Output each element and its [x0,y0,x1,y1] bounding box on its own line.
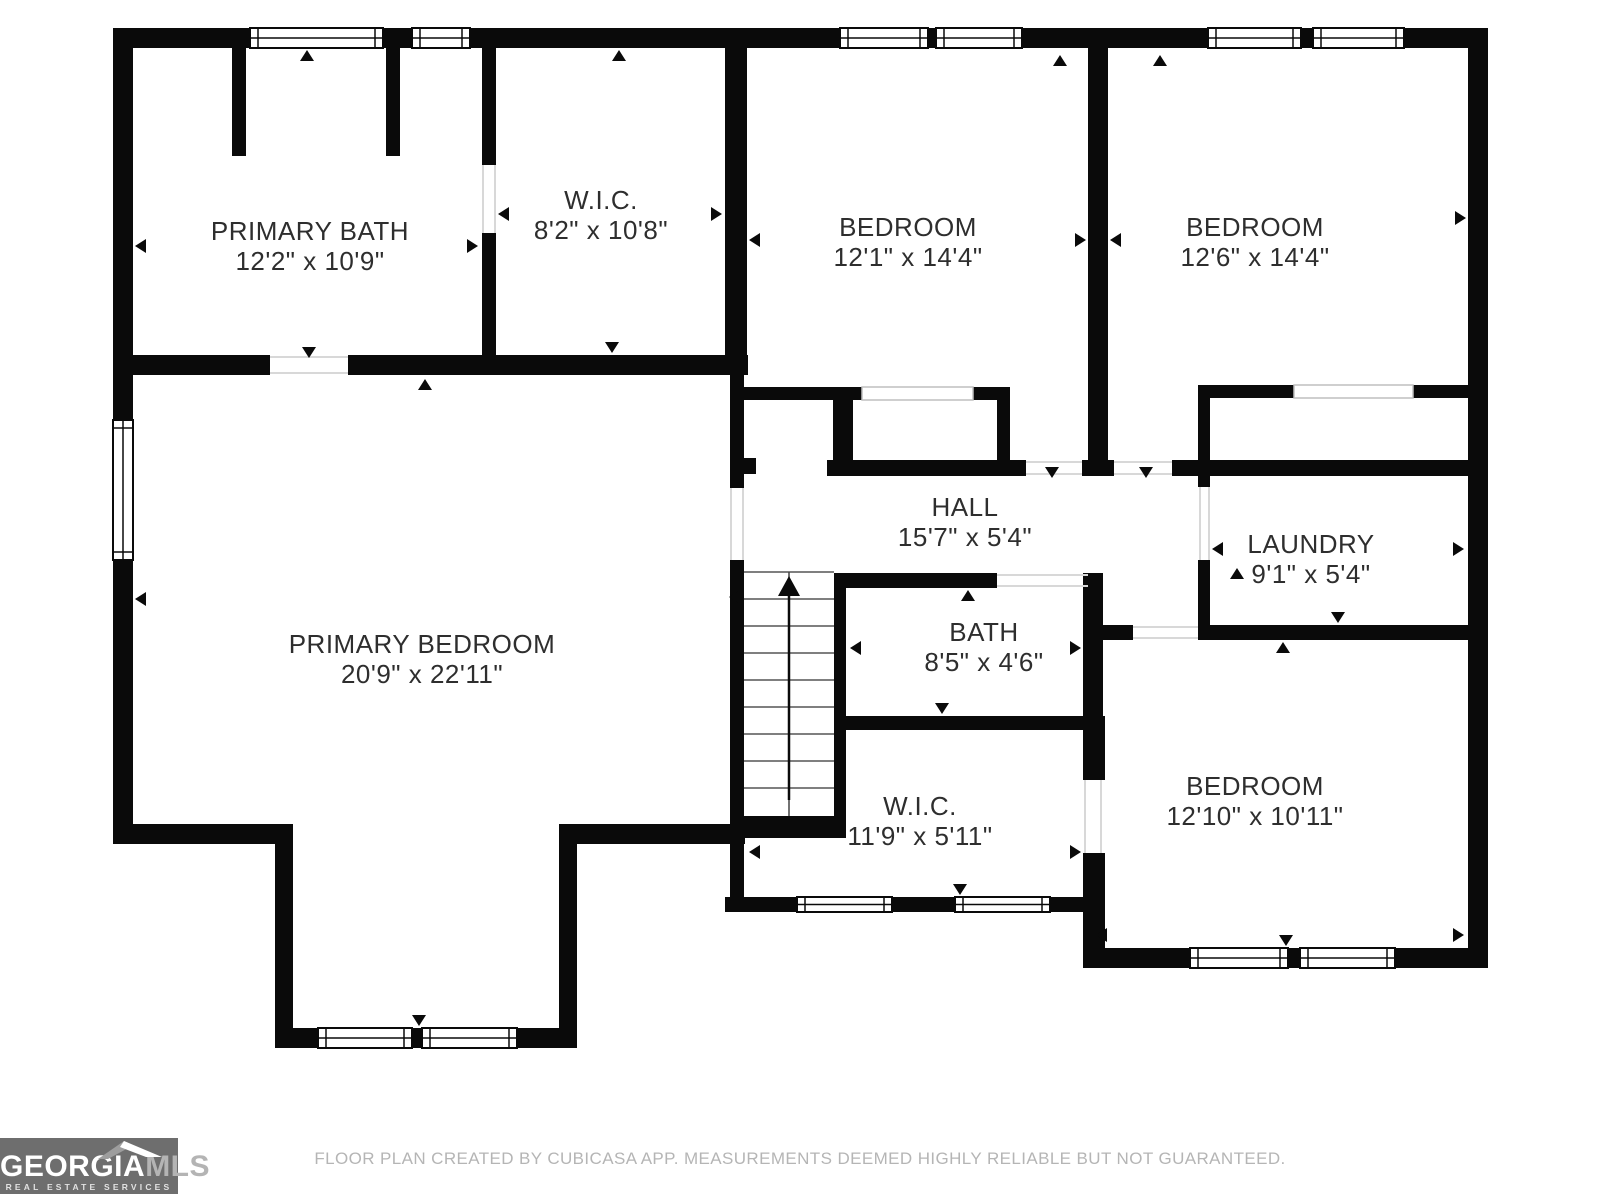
direction-marker-left [1212,542,1223,556]
wall-segment [1082,460,1114,476]
wall-segment [827,460,1010,476]
room-label-wic-bottom: W.I.C. [883,791,957,821]
direction-marker-up [1153,55,1167,66]
wall-segment [232,48,246,156]
direction-marker-up [612,50,626,61]
direction-marker-down [1331,612,1345,623]
wall-segment [834,573,846,816]
georgia-mls-logo: GEORGIAMLS REAL ESTATE SERVICES [0,1138,178,1194]
wall-segment [892,897,955,912]
direction-marker-left [850,641,861,655]
direction-marker-right [1455,211,1466,225]
room-label-bath: BATH [949,617,1018,647]
direction-marker-up [1230,568,1244,579]
wall-segment [113,824,293,844]
direction-marker-up [300,50,314,61]
wall-segment [1198,385,1294,398]
direction-marker-left [498,207,509,221]
wall-segment [744,816,846,838]
room-label-bedroom-1: BEDROOM [839,212,977,242]
room-label-laundry: LAUNDRY [1247,529,1374,559]
direction-marker-left [749,233,760,247]
wall-segment [744,458,756,474]
wall-segment [725,897,797,912]
wall-segment [1198,625,1468,640]
wall-segment [1413,385,1468,398]
room-dimensions-bath: 8'5" x 4'6" [924,647,1043,677]
direction-marker-down [1279,935,1293,946]
room-label-wic-top: W.I.C. [564,185,638,215]
logo-tagline: REAL ESTATE SERVICES [0,1182,178,1192]
room-dimensions-primary-bedroom: 20'9" x 22'11" [341,659,503,689]
wall-segment [730,560,744,897]
logo-brand-text: GEORGIAMLS [0,1152,174,1182]
wall-segment [1008,460,1026,476]
direction-marker-right [1070,641,1081,655]
direction-marker-up [1276,642,1290,653]
direction-marker-left [749,845,760,859]
wall-segment [113,355,270,375]
wall-segment [559,824,577,1048]
room-dimensions-wic-top: 8'2" x 10'8" [534,215,668,245]
room-dimensions-bedroom-2: 12'6" x 14'4" [1180,242,1329,272]
direction-marker-down [953,884,967,895]
wall-segment [1083,573,1103,716]
room-dimensions-hall: 15'7" x 5'4" [898,522,1032,552]
direction-marker-left [1110,233,1121,247]
direction-marker-right [1453,542,1464,556]
direction-marker-up [1053,55,1067,66]
direction-marker-down [1045,467,1059,478]
wall-segment [482,48,496,165]
wall-segment [1172,460,1468,476]
room-dimensions-bedroom-3: 12'10" x 10'11" [1166,801,1343,831]
cased-opening [862,387,973,400]
disclaimer-text: FLOOR PLAN CREATED BY CUBICASA APP. MEAS… [0,1149,1600,1169]
room-label-hall: HALL [931,492,998,522]
direction-marker-up [418,379,432,390]
wall-segment [997,387,1010,472]
direction-marker-left [135,592,146,606]
floor-plan-canvas: PRIMARY BATH12'2" x 10'9"W.I.C.8'2" x 10… [0,0,1600,1200]
wall-segment [846,573,997,588]
cased-opening [1294,385,1413,398]
wall-segment [1468,28,1488,968]
wall-segment [730,368,744,488]
wall-segment [275,824,293,1048]
wall-segment [348,355,748,375]
direction-marker-down [605,342,619,353]
wall-segment [833,398,853,460]
room-label-primary-bath: PRIMARY BATH [211,216,409,246]
direction-marker-down [412,1015,426,1026]
direction-marker-right [1070,845,1081,859]
wall-segment [482,233,496,355]
room-dimensions-laundry: 9'1" x 5'4" [1251,559,1370,589]
wall-segment [1198,385,1210,487]
direction-marker-right [467,239,478,253]
room-label-bedroom-3: BEDROOM [1186,771,1324,801]
wall-segment [1050,897,1095,912]
direction-marker-left [135,239,146,253]
room-label-bedroom-2: BEDROOM [1186,212,1324,242]
room-dimensions-wic-bottom: 11'9" x 5'11" [847,821,992,851]
wall-segment [725,28,747,368]
direction-marker-right [711,207,722,221]
room-label-primary-bedroom: PRIMARY BEDROOM [289,629,556,659]
direction-marker-right [1453,928,1464,942]
direction-marker-right [1075,233,1086,247]
wall-segment [1103,625,1133,640]
wall-segment [559,824,745,844]
floor-plan-page: PRIMARY BATH12'2" x 10'9"W.I.C.8'2" x 10… [0,0,1600,1200]
direction-marker-down [935,703,949,714]
room-dimensions-primary-bath: 12'2" x 10'9" [235,246,384,276]
stair-up-arrow [778,576,800,596]
direction-marker-up [961,590,975,601]
wall-segment [1088,48,1108,460]
wall-segment [846,716,1103,730]
room-dimensions-bedroom-1: 12'1" x 14'4" [833,242,982,272]
direction-marker-down [1139,467,1153,478]
wall-segment [386,48,400,156]
